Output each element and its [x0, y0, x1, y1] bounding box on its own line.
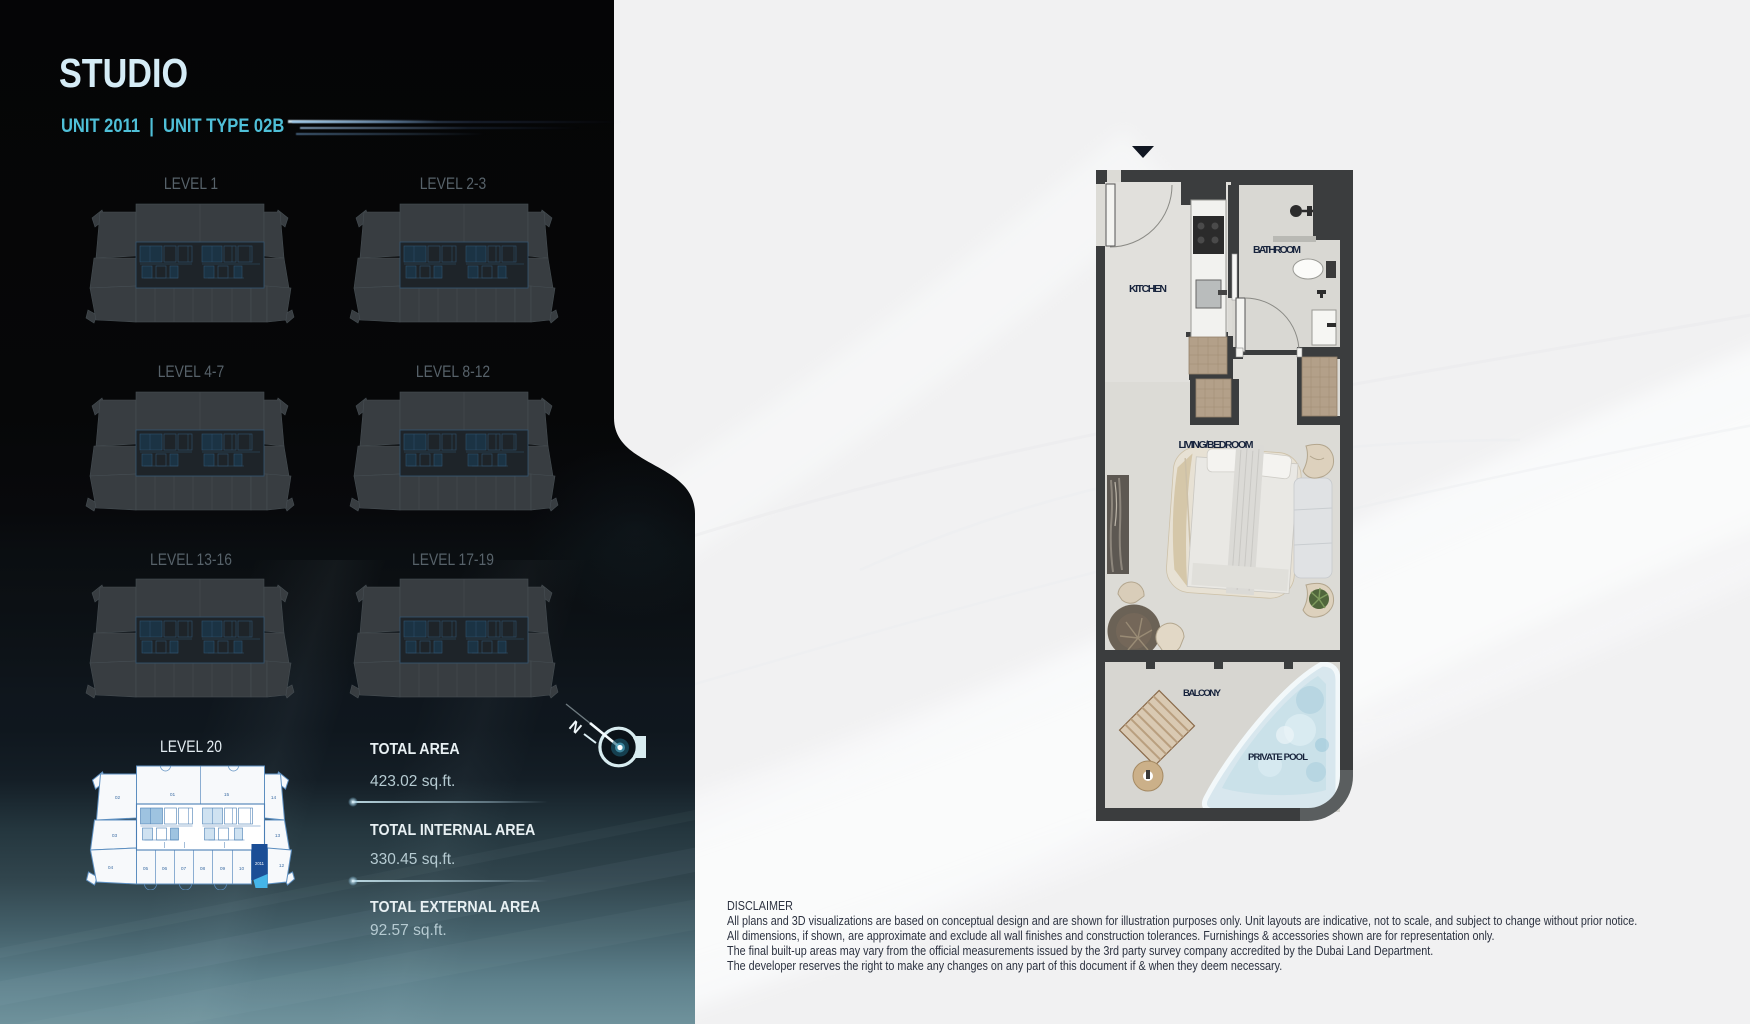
svg-text:KITCHEN: KITCHEN	[1129, 283, 1167, 295]
svg-text:PRIVATE POOL: PRIVATE POOL	[1248, 752, 1308, 763]
svg-text:BALCONY: BALCONY	[1183, 688, 1222, 699]
svg-text:N: N	[565, 717, 584, 737]
svg-text:LIVING/BEDROOM: LIVING/BEDROOM	[1179, 439, 1254, 451]
svg-text:BATHROOM: BATHROOM	[1253, 244, 1301, 256]
